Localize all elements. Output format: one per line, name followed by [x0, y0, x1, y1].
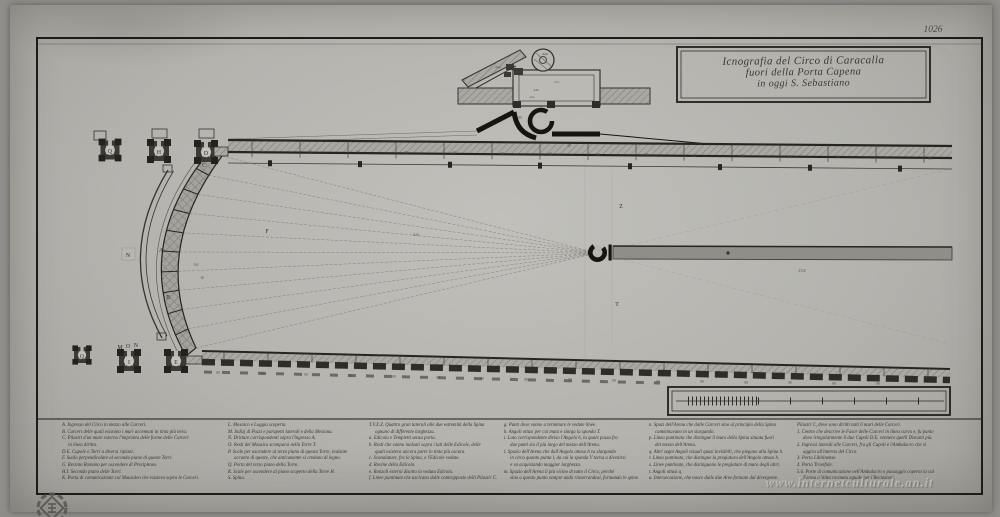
top-wall — [228, 140, 952, 172]
legend-line: Q. Porta del terzo piano della Torre. — [228, 463, 347, 470]
plan-annotation: N — [134, 343, 139, 349]
plan-annotation: 99 — [596, 153, 600, 157]
legend-line: K. Porta di comunicazione col Mausoleo c… — [62, 476, 199, 483]
legend-line: e. Ronzoli esterni disotto la veduta Edi… — [369, 470, 497, 477]
plan-annotation: 99 — [612, 379, 616, 383]
plan-annotation: 9.6 — [194, 263, 199, 267]
legend-line: T.V.X.Z. Quattro gran laterali alle due … — [369, 423, 497, 430]
legend-line: f. Linee puntinate che uscivano dalle co… — [369, 476, 497, 483]
plan-annotation: 99 — [436, 376, 440, 380]
plan-annotation: 99 — [480, 377, 484, 381]
legend-line: accanto di queste, che anticamente si cr… — [228, 456, 347, 463]
legend-line: Pilastri C, dove sono diritti tutti li m… — [797, 423, 934, 430]
legend-line: r. Linea puntinata, che distingue la pre… — [649, 456, 783, 463]
legend-line: R. Scale per ascendere al piano scoperto… — [228, 470, 347, 477]
plan-annotation: 99 — [304, 373, 308, 377]
plan-annotation: 99 — [876, 382, 880, 386]
plate-number: 1026 — [903, 25, 963, 35]
legend-line: u. Intersecazione, che nasce dalle due A… — [649, 476, 783, 483]
legend-line: O. Resti del Mosaico scomparsi nella Tor… — [228, 443, 347, 450]
carceres-arc — [156, 146, 222, 360]
plan-annotation: ccc — [555, 80, 560, 84]
plan-annotation: 99 — [348, 374, 352, 378]
tower-d — [194, 129, 228, 164]
plan-annotation: F — [265, 229, 269, 235]
legend-line: F. Suolo perpendicolare al secondo piano… — [62, 456, 199, 463]
inset-plan — [458, 49, 650, 108]
legend-line: g. Punti dove vanno a terminare le vedut… — [504, 423, 639, 430]
plan-annotation: C — [202, 163, 206, 169]
plan-annotation: D — [204, 151, 208, 157]
plan-annotation: 99 — [656, 380, 660, 384]
tower-h — [147, 129, 171, 163]
legend-line: due punti sia il più largo del mezzo del… — [504, 443, 639, 450]
legend-line: C. Pilastri d'un muro esterno l'impronta… — [62, 436, 199, 443]
plan-annotation: Z — [619, 204, 623, 210]
plan-annotation: aaa — [495, 65, 501, 69]
plan-annotation: 16 — [200, 276, 204, 280]
plan-annotation: 99 — [308, 150, 312, 154]
plan-annotation: 99 — [392, 375, 396, 379]
legend-line: H.I. Secondo piano delle Torri. — [62, 470, 199, 477]
plan-annotation: 99 — [788, 155, 792, 159]
legend-line: aggira all'interno del Circo. — [797, 450, 934, 457]
plan-annotation: 444 — [533, 88, 539, 92]
plan-annotation: 99 — [744, 381, 748, 385]
legend-line: N. Dritture corrispondenti sopra l'ingre… — [228, 436, 347, 443]
legend-line: sino a questo punto sempre andò rinserra… — [504, 476, 639, 483]
legend-column: L. Mosaico e Loggia scoperta.M. Indizj d… — [228, 423, 347, 483]
plan-annotation: B — [166, 295, 170, 301]
plan-annotation: ddd — [542, 52, 548, 56]
legend-line: 1. Centro che descrive le Fasce delle Ca… — [797, 430, 934, 437]
plan-annotation: eee — [530, 95, 535, 99]
plan-annotation: 99 — [216, 371, 220, 375]
plan-annotation: 99 — [567, 144, 571, 148]
legend-column: g. Punti dove vanno a terminare le vedut… — [504, 423, 639, 483]
legend-line: m. Spazio dell'Arena il più vicino di tu… — [504, 470, 639, 477]
plan-annotation: 99 — [524, 378, 528, 382]
legend-line: B. Carceri delle quali esistono i muri a… — [62, 430, 199, 437]
legend-line: t. Angoli ottusi q. — [649, 470, 783, 477]
bottom-wall — [202, 351, 950, 383]
plan-annotation: 2334 — [798, 269, 805, 273]
legend-line: p. Linea puntinata che distingue il muro… — [649, 436, 783, 443]
plan-annotation: 99 — [568, 378, 572, 382]
legend-column: Pilastri C, dove sono diritti tutti li m… — [797, 423, 934, 483]
plan-annotation: 99 — [404, 151, 408, 155]
spina — [613, 246, 952, 260]
watermark: www.internetculturale.an.it — [766, 476, 996, 491]
legend-line: S. Spina. — [228, 476, 347, 483]
legend-line: in circa quanto punta l, da cui la spond… — [504, 456, 639, 463]
legend-line: D.E. Cupole o Torri a diversi ripiani. — [62, 450, 199, 457]
tower-q-upper — [94, 131, 121, 161]
plan-annotation: 616 — [413, 233, 419, 237]
legend-line: i. Lato corrispondente diviso l'Angolo h… — [504, 436, 639, 443]
plan-annotation: 66 — [548, 152, 552, 156]
legend-line: e va acquistando maggior larghezza. — [504, 463, 639, 470]
legend-line: del mezzo dell'Arena. — [649, 443, 783, 450]
scale-bar — [668, 387, 950, 415]
plan-annotation: T — [615, 302, 619, 308]
legend-line: M. Indizj di Pozzi e parapetti laterali … — [228, 430, 347, 437]
legend-column: A. Ingresso del Circo in mezzo alle Carc… — [62, 423, 199, 483]
meta — [587, 242, 611, 262]
plan-annotation: E — [174, 360, 178, 366]
legend-line: d. Rovine della Edicola. — [369, 463, 497, 470]
plan-annotation: 99 — [928, 157, 932, 161]
plan-annotation: 66 — [356, 150, 360, 154]
legend-line: a. Edicola e Tempietti senza porta. — [369, 436, 497, 443]
legend-line: camminavano in un slargando. — [649, 430, 783, 437]
legend-line: G. Recinto Romano per ascendere di Preci… — [62, 463, 199, 470]
legend-line: P. Scale per ascendere al terzo piano di… — [228, 450, 347, 457]
legend-line: c. Scanalature, fra la Spina, e l'Edicol… — [369, 456, 497, 463]
plan-annotation: 99 — [644, 153, 648, 157]
legend-line: A. Ingresso del Circo in mezzo alle Carc… — [62, 423, 199, 430]
legend-line: dove irregolarmente li due Cupoli D.E. v… — [797, 436, 934, 443]
legend-line: ognuno di differente larghezza. — [369, 430, 497, 437]
plan-annotation: 99 — [788, 381, 792, 385]
legend-line: 4. Porta Trionfale. — [797, 463, 934, 470]
legend-column: T.V.X.Z. Quattro gran laterali alle due … — [369, 423, 497, 483]
legend-line: s. Linee puntinate, che distinguono le p… — [649, 463, 783, 470]
legend-column: n. Spazi dell'Arena che dalle Carceri si… — [649, 423, 783, 483]
tower-e — [164, 349, 202, 373]
plan-annotation: 99 — [500, 152, 504, 156]
legend-line: q. Altri segni Angoli visuali quasi invi… — [649, 450, 783, 457]
plan-annotation: 66 — [836, 155, 840, 159]
legend-line: 3. Porta Libitinense. — [797, 456, 934, 463]
legend-line: b. Resti che vanno inalzati sopra i lati… — [369, 443, 497, 450]
collection-stamp-icon — [38, 494, 66, 517]
title-cartouche: Icnografia del Circo di Caracalla fuori … — [677, 54, 930, 91]
plan-annotation: 99 — [884, 156, 888, 160]
plan-annotation: 99 — [518, 116, 522, 120]
plan-annotation: 99 — [740, 154, 744, 158]
plan-annotation: I — [128, 360, 130, 366]
legend-line: h. Angoli ottusi per cui muta e slarga l… — [504, 430, 639, 437]
legend-line: L. Mosaico e Loggia scoperta. — [228, 423, 347, 430]
plan-annotation: 99 — [260, 372, 264, 376]
plan-annotation: O — [126, 344, 130, 350]
legend-line: n. Spazi dell'Arena che dalle Carceri si… — [649, 423, 783, 430]
legend-line: l. Spazio dell'Arena che dall'Angolo ott… — [504, 450, 639, 457]
plan-annotation: M — [117, 345, 122, 351]
plan-annotation: 99 — [700, 380, 704, 384]
plan-annotation: 44 — [452, 151, 456, 155]
legend-line: 2. Ingressi laterali alle Carceri, fra g… — [797, 443, 934, 450]
plan-annotation: 11 — [260, 149, 264, 153]
legend-line: quali esisteva ancora parte in tinta più… — [369, 450, 497, 457]
legend-line: in linea diritta. — [62, 443, 199, 450]
plan-annotation: 66 — [692, 154, 696, 158]
plan-annotation: 99 — [832, 382, 836, 386]
